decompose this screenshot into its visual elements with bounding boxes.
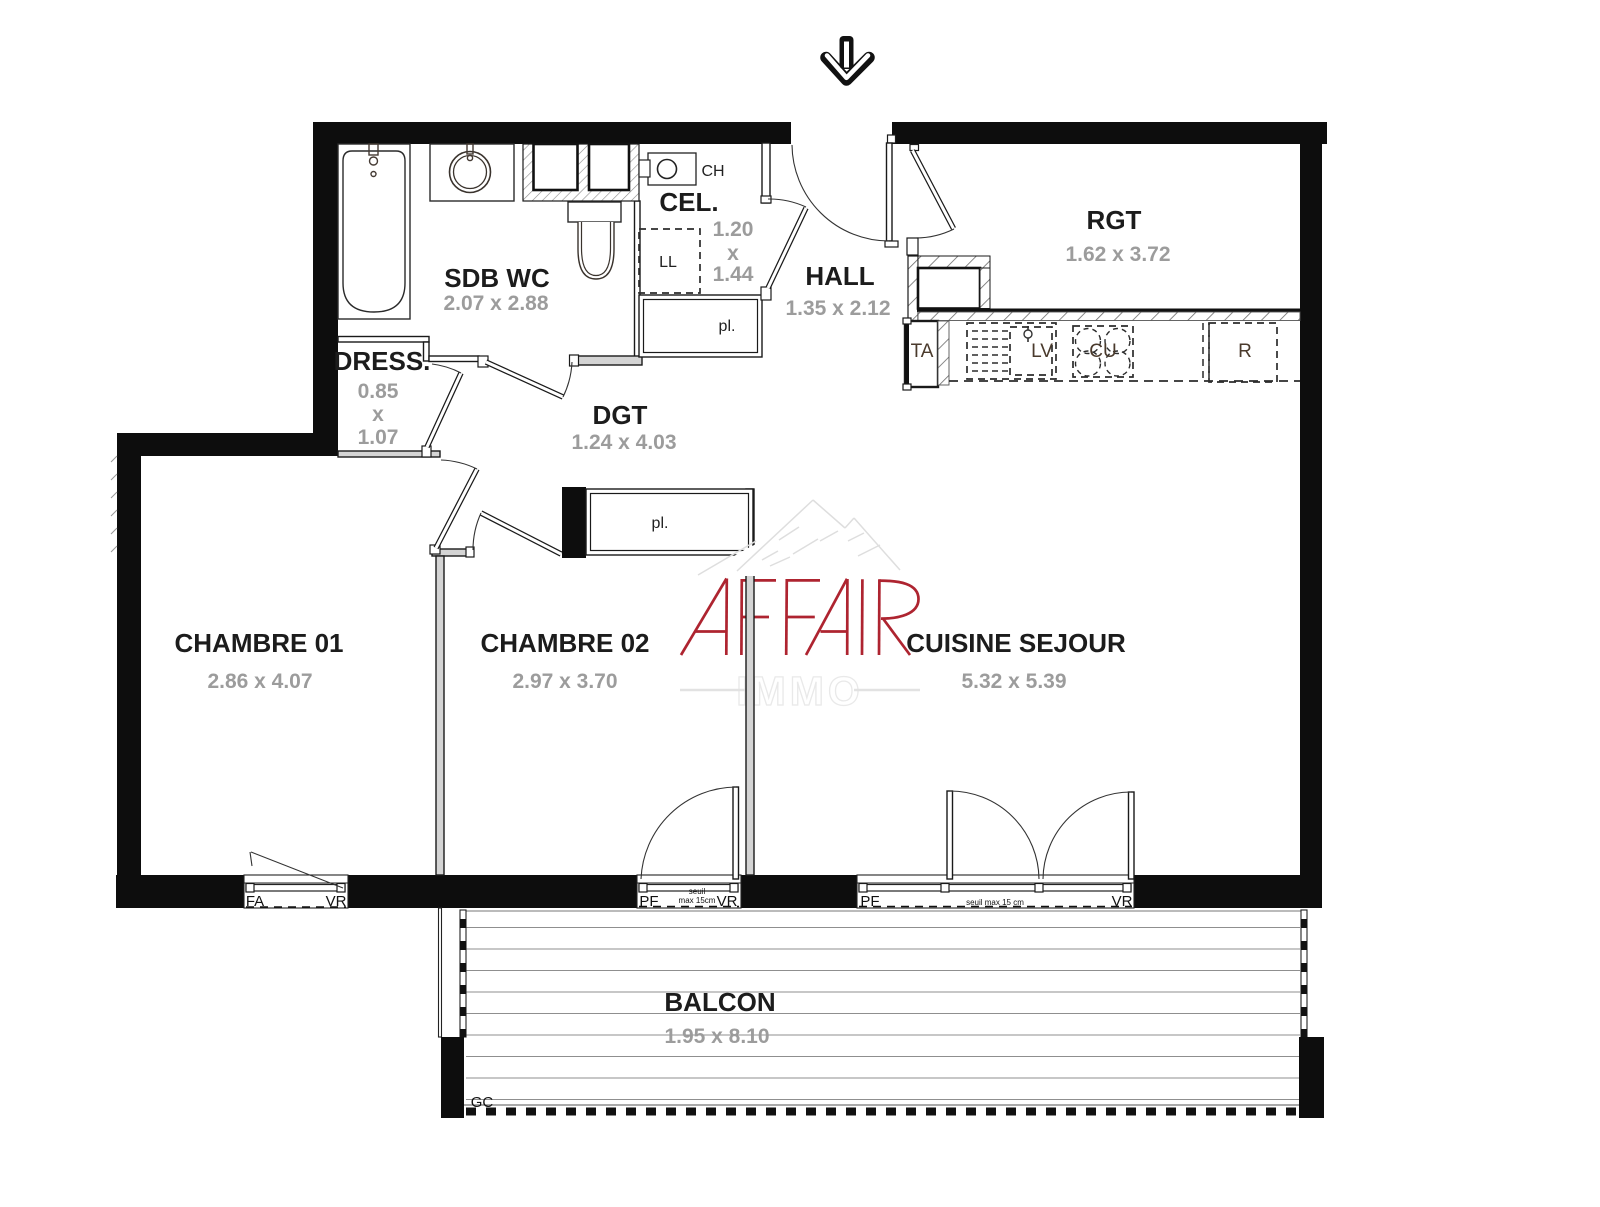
svg-text:IMMO: IMMO [736,668,864,714]
svg-text:CEL.: CEL. [659,187,718,217]
svg-text:RGT: RGT [1087,205,1142,235]
svg-text:DRESS.: DRESS. [334,346,431,376]
svg-text:5.32 x 5.39: 5.32 x 5.39 [961,670,1066,693]
svg-text:seuil max 15 cm: seuil max 15 cm [966,898,1024,907]
svg-text:2.97 x 3.70: 2.97 x 3.70 [512,670,617,693]
svg-text:HALL: HALL [805,261,874,291]
svg-text:BALCON: BALCON [664,987,775,1017]
svg-text:PF: PF [639,893,658,910]
svg-text:VR: VR [1112,893,1133,910]
svg-text:CHAMBRE 02: CHAMBRE 02 [480,628,649,658]
svg-text:CUISINE SEJOUR: CUISINE SEJOUR [906,628,1126,658]
svg-text:1.35 x 2.12: 1.35 x 2.12 [785,297,890,320]
svg-text:seuil: seuil [689,887,706,896]
svg-text:2.86 x 4.07: 2.86 x 4.07 [207,670,312,693]
svg-text:CHAMBRE 01: CHAMBRE 01 [174,628,343,658]
svg-text:1.24 x 4.03: 1.24 x 4.03 [571,431,676,454]
svg-text:pl.: pl. [652,515,669,532]
svg-text:pl.: pl. [719,318,736,335]
svg-text:2.07 x 2.88: 2.07 x 2.88 [443,292,548,315]
svg-text:1.95 x 8.10: 1.95 x 8.10 [664,1025,769,1048]
svg-text:1.44: 1.44 [713,263,754,286]
svg-text:1.62 x 3.72: 1.62 x 3.72 [1065,243,1170,266]
svg-text:0.85: 0.85 [358,380,399,403]
svg-text:max 15cm: max 15cm [679,896,716,905]
svg-text:x: x [727,242,739,265]
svg-text:GC: GC [471,1094,494,1111]
svg-text:LV: LV [1031,341,1053,362]
svg-text:VR: VR [717,893,738,910]
svg-text:SDB WC: SDB WC [444,263,550,293]
svg-text:VR: VR [326,893,347,910]
svg-text:R: R [1238,341,1252,362]
svg-text:LL: LL [659,254,677,271]
svg-text:1.20: 1.20 [713,218,754,241]
svg-text:x: x [372,403,384,426]
svg-text:TA: TA [911,341,934,362]
svg-text:PF: PF [860,893,879,910]
svg-text:1.07: 1.07 [358,426,399,449]
svg-text:DGT: DGT [593,400,648,430]
svg-text:CH: CH [701,163,724,180]
svg-text:FA: FA [246,893,264,910]
svg-text:CU: CU [1089,341,1116,362]
